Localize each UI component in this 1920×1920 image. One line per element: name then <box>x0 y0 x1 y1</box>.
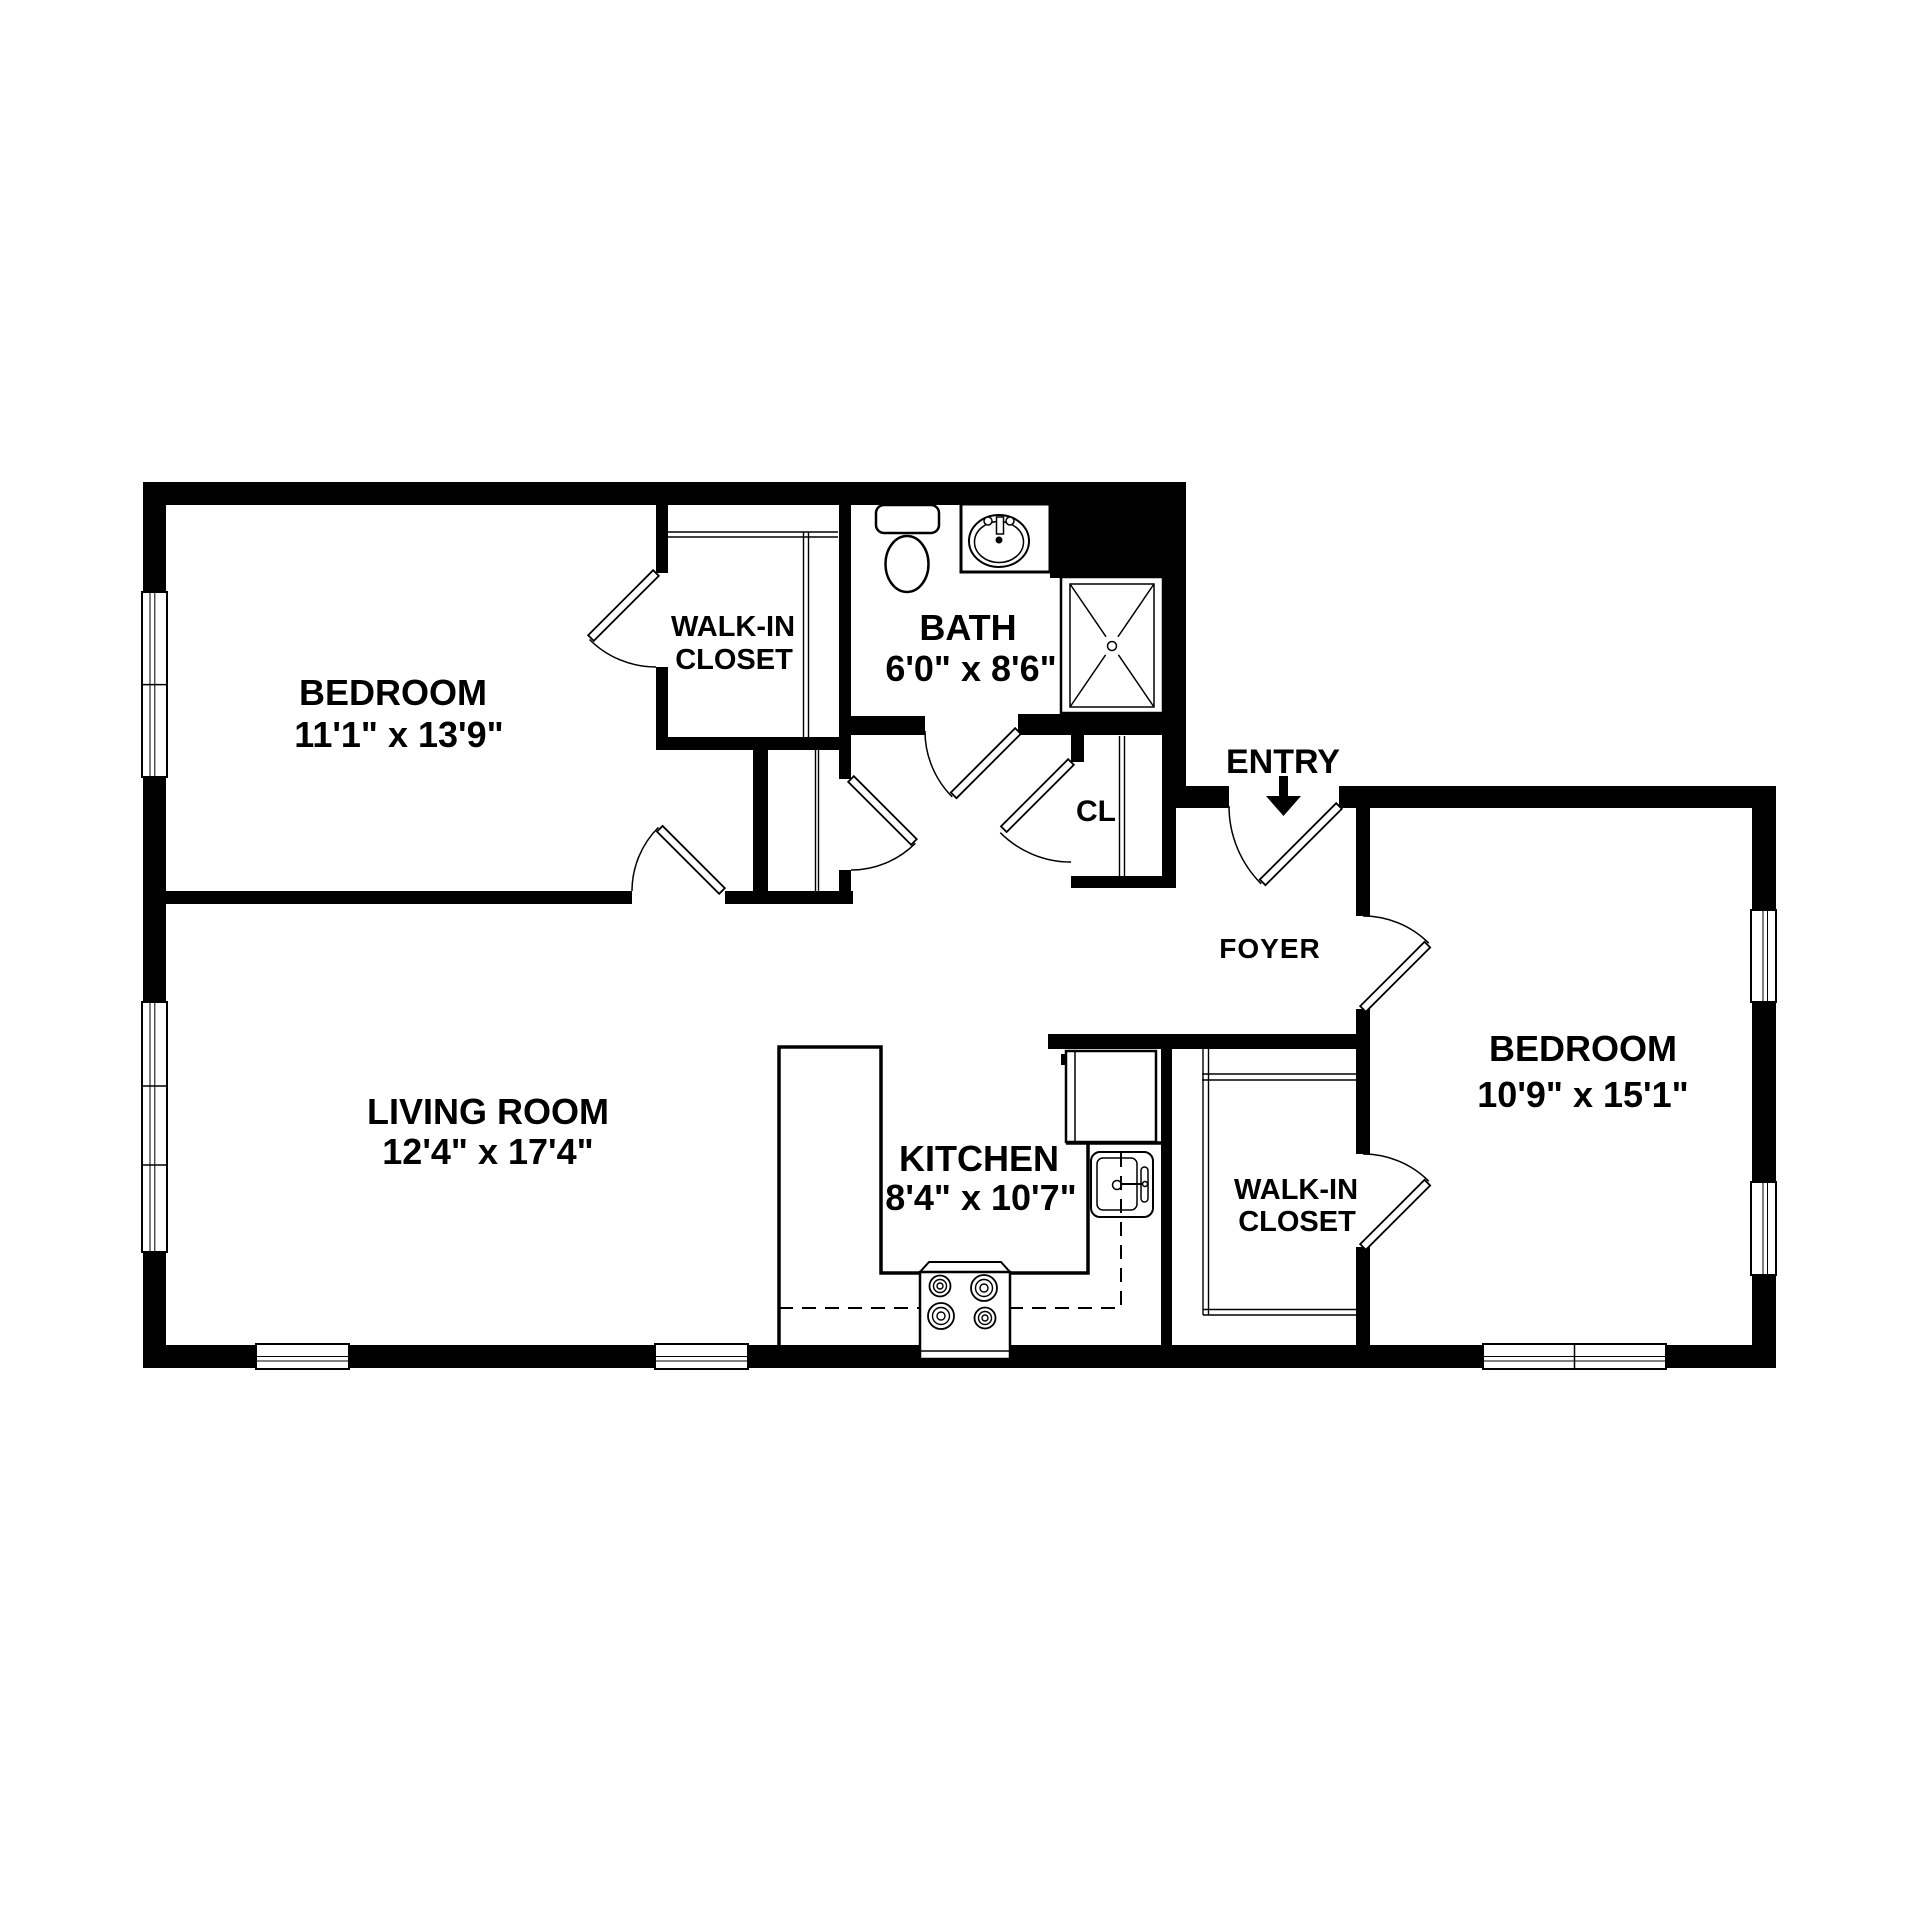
svg-text:8'4" x 10'7": 8'4" x 10'7" <box>885 1177 1076 1218</box>
svg-text:10'9" x 15'1": 10'9" x 15'1" <box>1477 1074 1688 1115</box>
svg-text:11'1" x 13'9": 11'1" x 13'9" <box>294 714 503 755</box>
svg-text:FOYER: FOYER <box>1219 933 1320 964</box>
svg-text:ENTRY: ENTRY <box>1226 743 1340 781</box>
svg-text:6'0" x 8'6": 6'0" x 8'6" <box>885 648 1056 689</box>
svg-text:BEDROOM: BEDROOM <box>299 672 487 713</box>
svg-text:BATH: BATH <box>919 607 1016 648</box>
svg-text:LIVING ROOM: LIVING ROOM <box>367 1091 609 1132</box>
svg-text:12'4" x 17'4": 12'4" x 17'4" <box>382 1131 593 1172</box>
svg-text:WALK-IN: WALK-IN <box>1234 1174 1358 1206</box>
svg-text:KITCHEN: KITCHEN <box>899 1138 1059 1179</box>
svg-text:CLOSET: CLOSET <box>1238 1206 1356 1238</box>
svg-text:CLOSET: CLOSET <box>675 644 793 676</box>
svg-text:CL: CL <box>1076 795 1116 828</box>
svg-text:WALK-IN: WALK-IN <box>671 611 795 643</box>
svg-text:BEDROOM: BEDROOM <box>1489 1028 1677 1069</box>
